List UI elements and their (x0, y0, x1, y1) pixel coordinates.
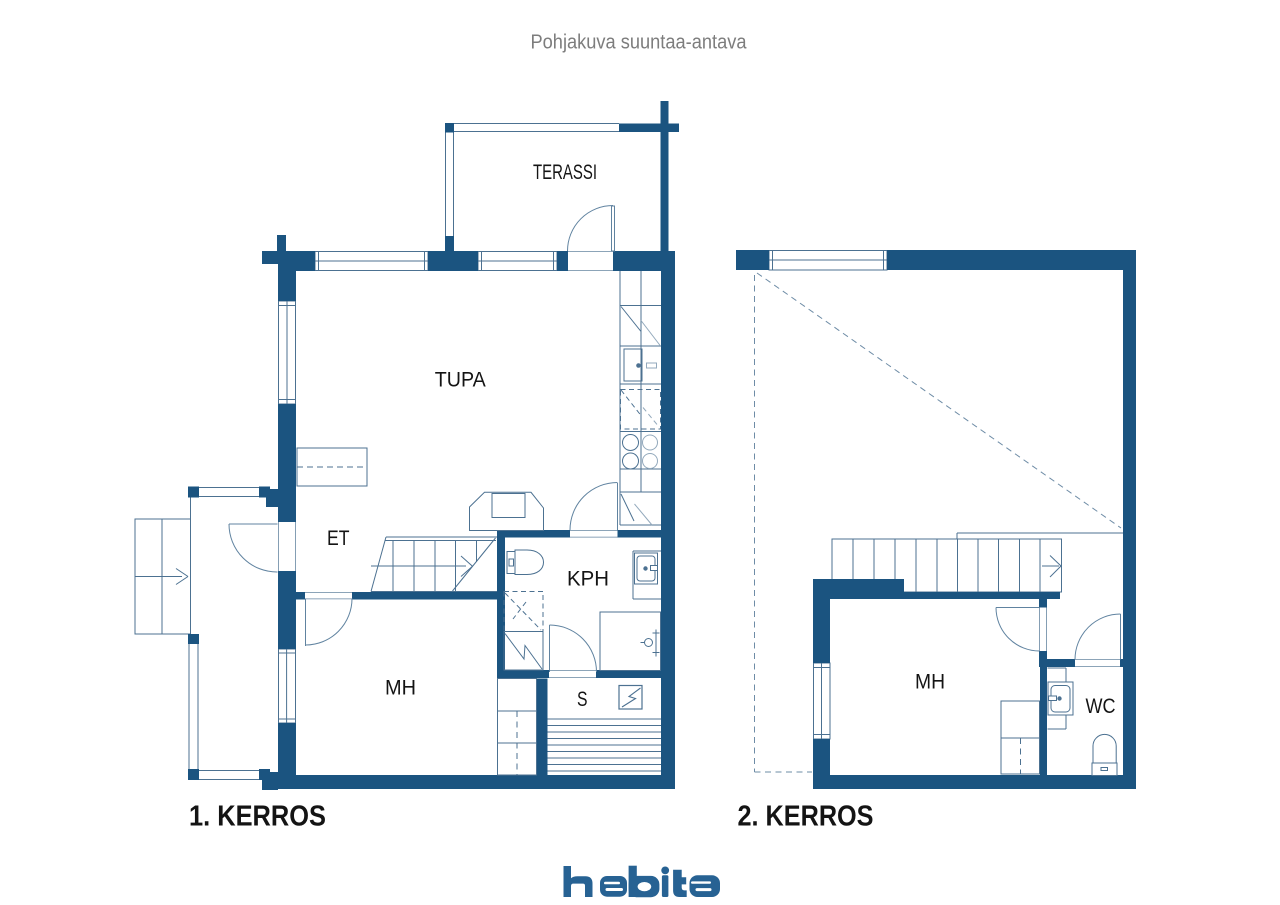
svg-text:TUPA: TUPA (435, 367, 487, 391)
svg-text:KPH: KPH (567, 567, 609, 591)
svg-text:ET: ET (327, 526, 350, 550)
svg-text:MH: MH (915, 670, 945, 694)
svg-text:2. KERROS: 2. KERROS (738, 801, 874, 833)
svg-text:MH: MH (385, 676, 416, 700)
svg-text:Pohjakuva suuntaa-antava: Pohjakuva suuntaa-antava (531, 31, 748, 54)
svg-text:WC: WC (1086, 694, 1116, 718)
svg-text:TERASSI: TERASSI (533, 160, 597, 184)
svg-text:S: S (577, 687, 588, 711)
svg-text:1. KERROS: 1. KERROS (189, 801, 326, 833)
